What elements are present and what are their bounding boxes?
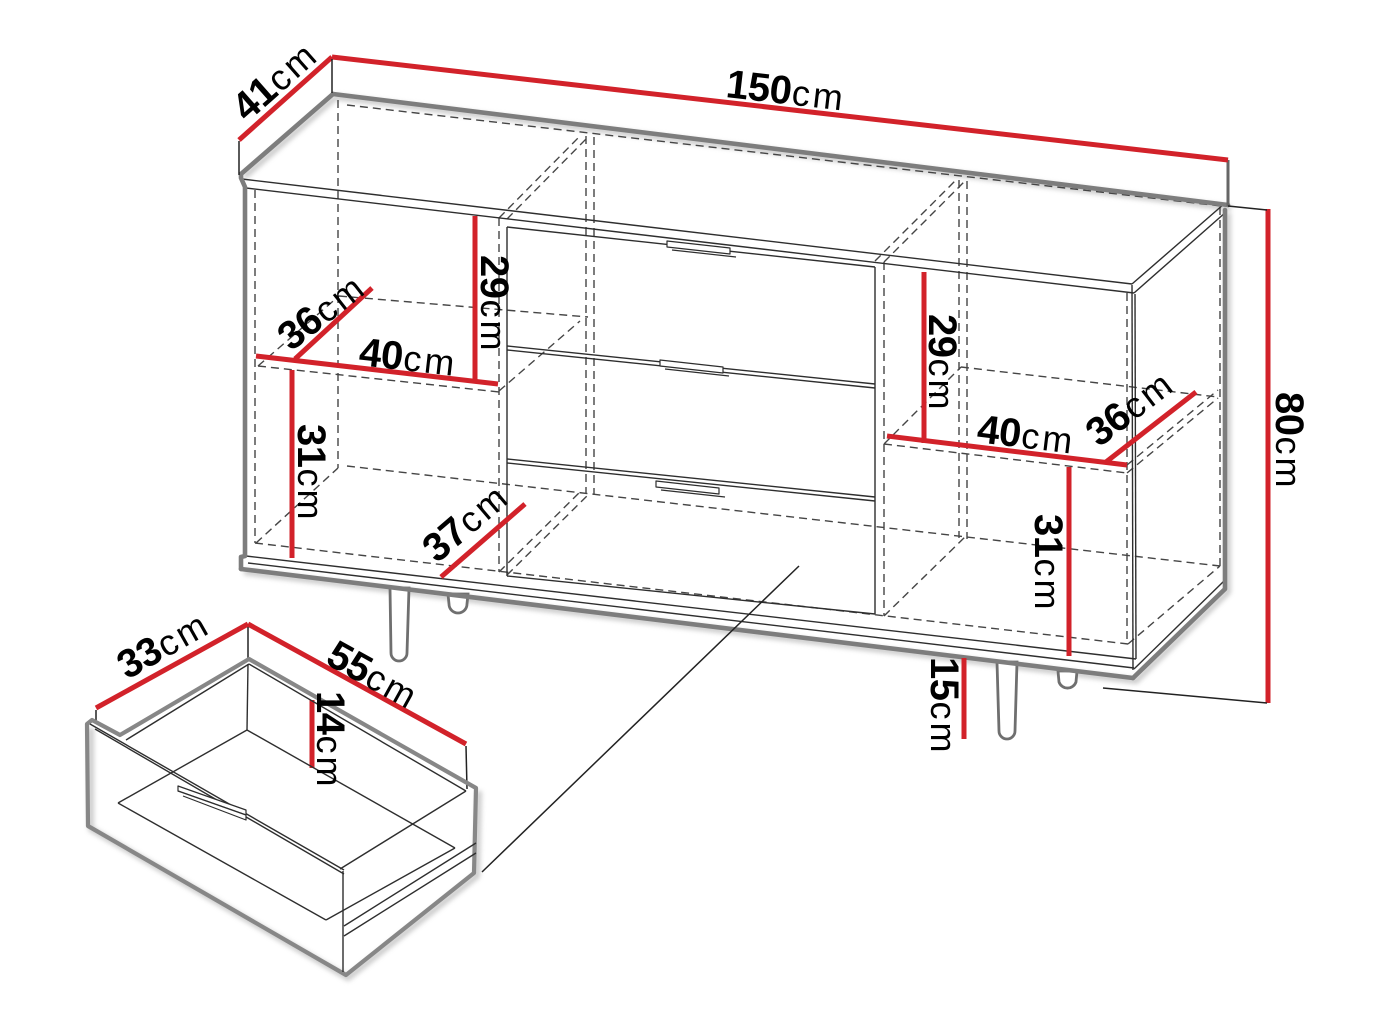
svg-text:29cm: 29cm [920, 314, 964, 413]
svg-text:29cm: 29cm [472, 255, 516, 354]
svg-text:31cm: 31cm [1026, 514, 1070, 613]
svg-text:31cm: 31cm [289, 424, 333, 523]
svg-text:80cm: 80cm [1267, 392, 1311, 491]
svg-text:14cm: 14cm [308, 691, 352, 790]
svg-text:15cm: 15cm [922, 657, 966, 756]
